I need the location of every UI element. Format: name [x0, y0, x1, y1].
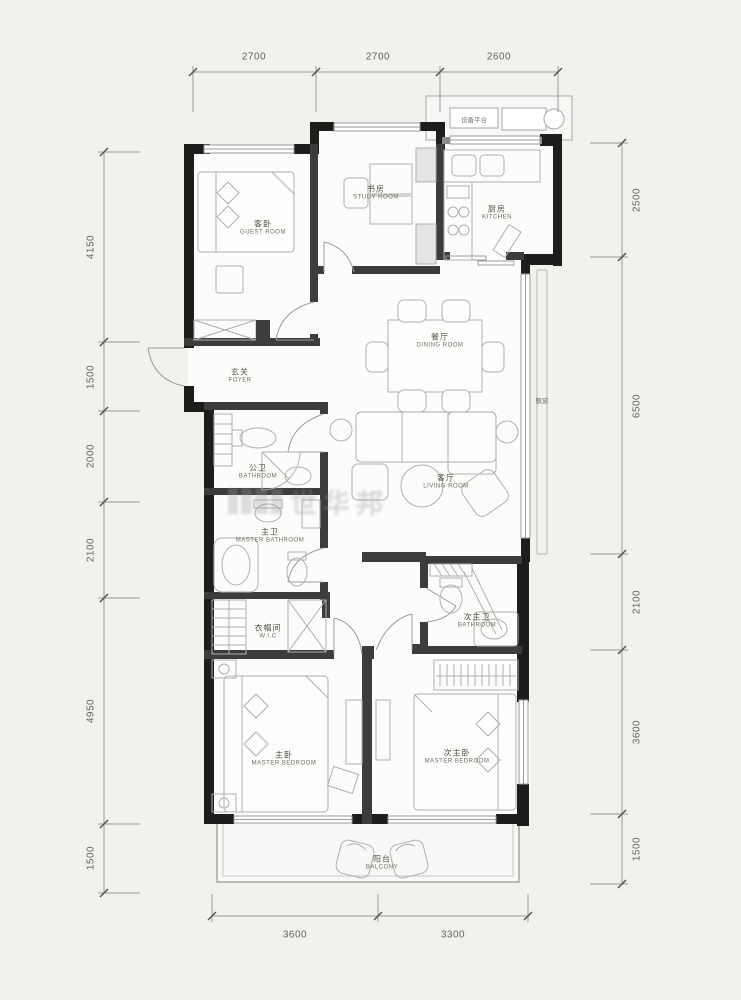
dim-right-4: 3600 [632, 720, 643, 744]
dim-right-1: 2500 [632, 188, 643, 212]
platform-vent-icon [544, 109, 564, 129]
dim-left-3: 2000 [86, 444, 97, 468]
bay-window-label: 飘窗 [536, 395, 549, 405]
dim-left-1: 4150 [86, 235, 97, 259]
dim-bottom-1: 3600 [283, 930, 307, 941]
dim-top-3: 2600 [487, 52, 511, 63]
dim-left-2: 1500 [86, 365, 97, 389]
dim-left-4: 2100 [86, 538, 97, 562]
floor-plan-canvas: 2700 2700 2600 3600 3300 4150 1500 2000 … [0, 0, 741, 1000]
dim-bottom-2: 3300 [441, 930, 465, 941]
dim-right-2: 6500 [632, 394, 643, 418]
dim-right-3: 2100 [632, 590, 643, 614]
dim-top-2: 2700 [366, 52, 390, 63]
dim-right-5: 1500 [632, 837, 643, 861]
dim-left-5: 4950 [86, 699, 97, 723]
floor-plan-svg [0, 0, 741, 1000]
equipment-platform-outline [426, 96, 572, 140]
equipment-platform-label: 设备平台 [461, 114, 487, 124]
dim-top-1: 2700 [242, 52, 266, 63]
entry-door [148, 348, 184, 386]
dim-left-6: 1500 [86, 846, 97, 870]
bay-window-ledge [537, 270, 547, 554]
balcony-walls [217, 822, 519, 882]
